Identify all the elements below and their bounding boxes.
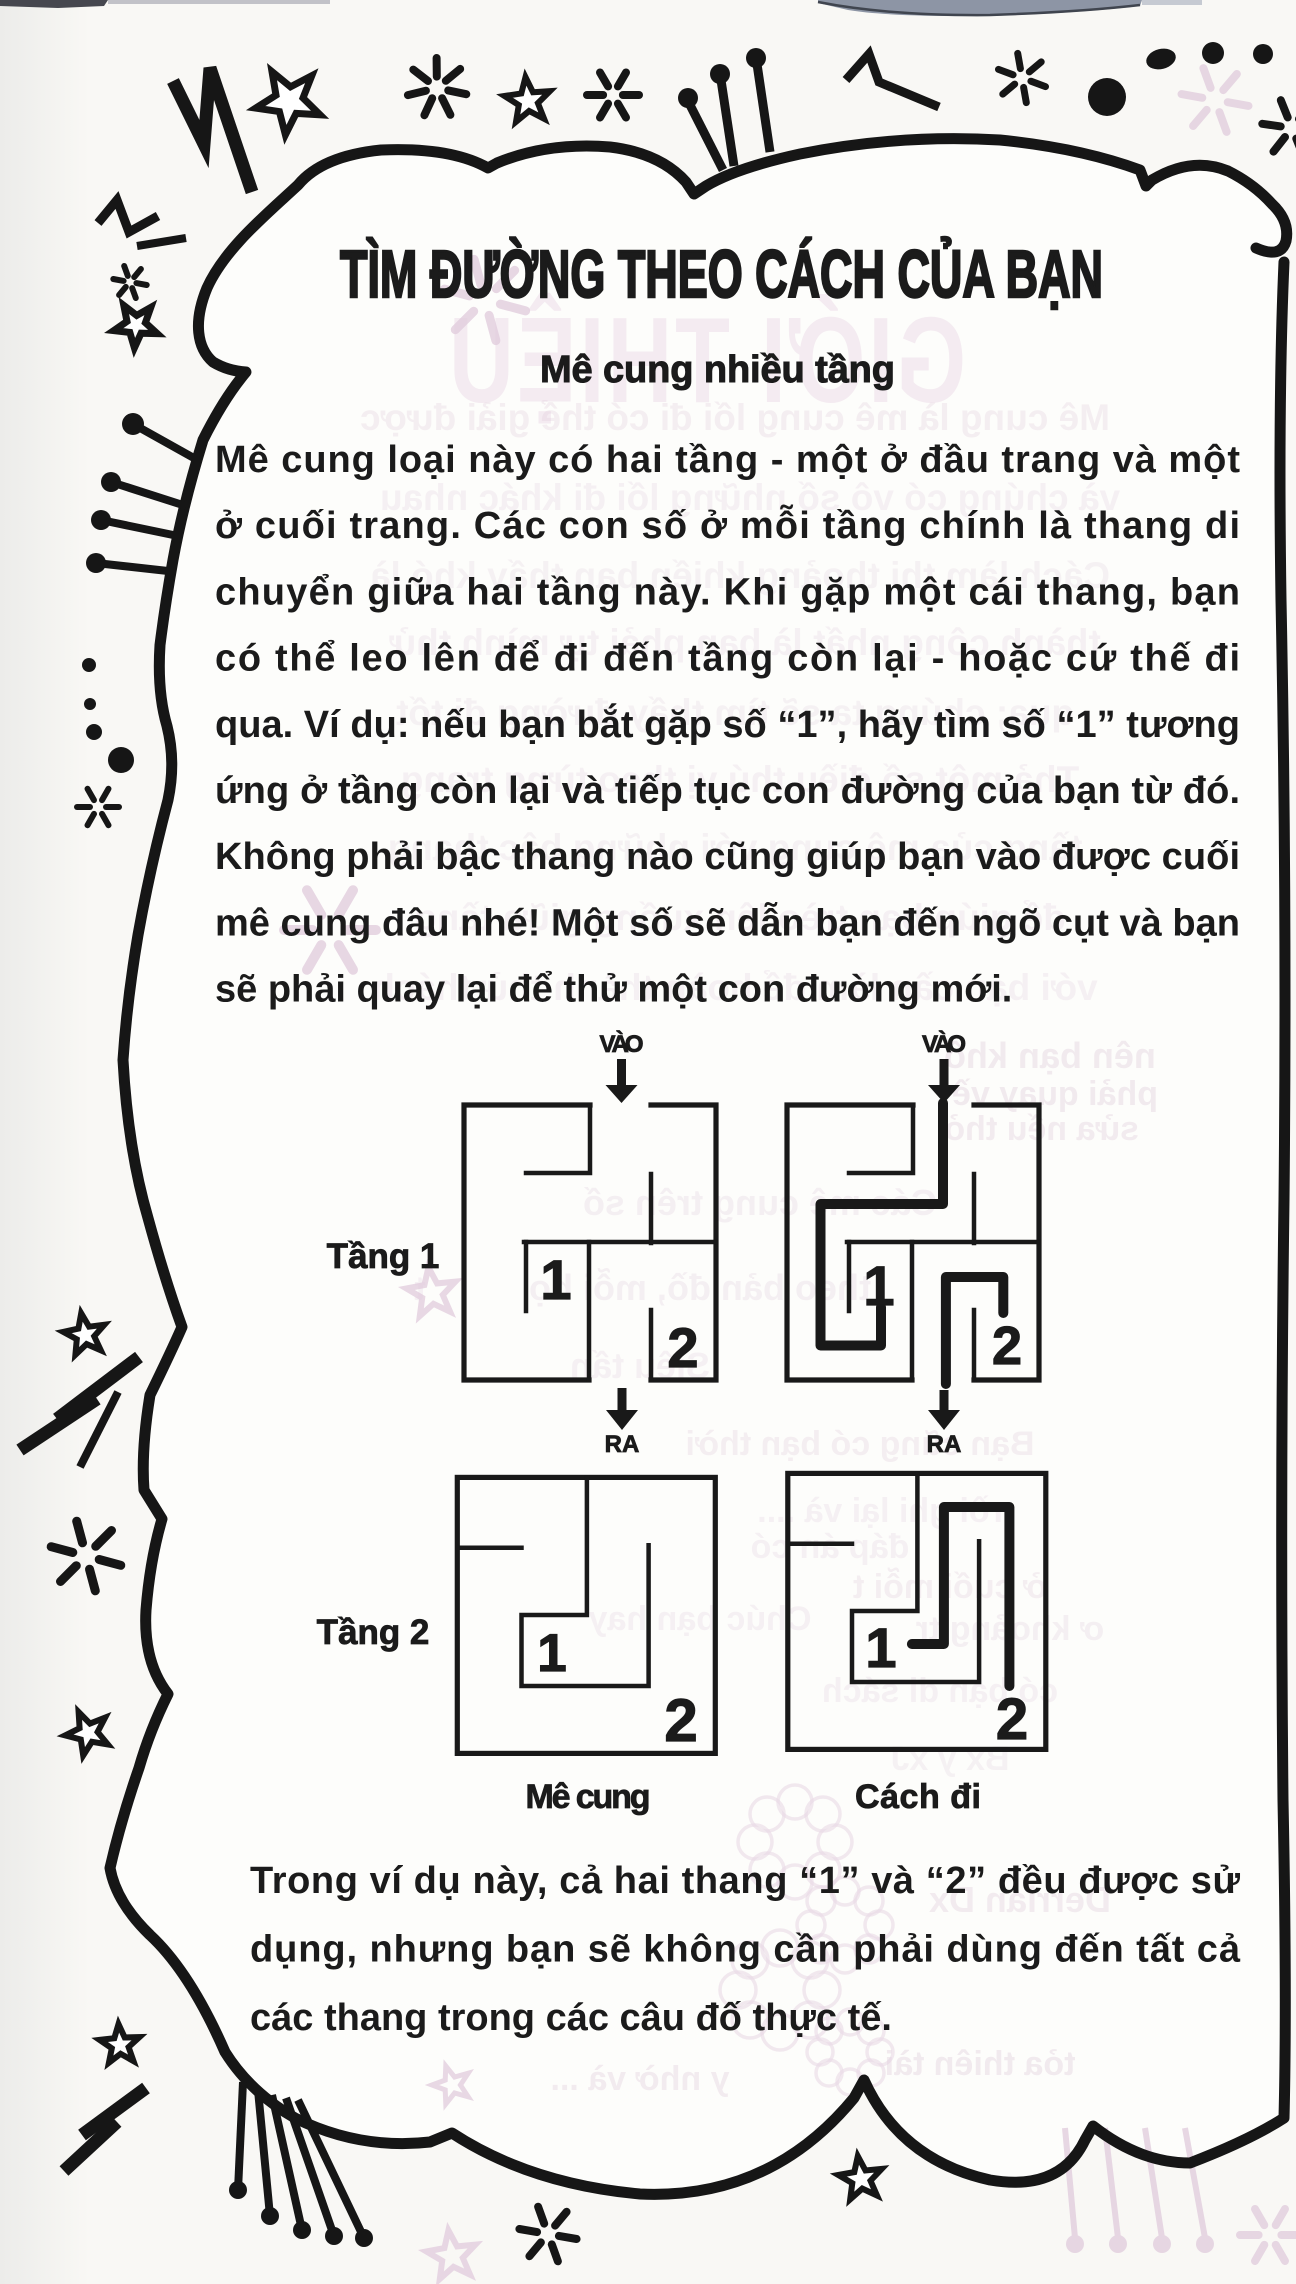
svg-text:sẽ phải quay lại để thử một co: sẽ phải quay lại để thử một con đường mớ… [215, 969, 1012, 1011]
svg-text:dụng, nhưng bạn sẽ không cần p: dụng, nhưng bạn sẽ không cần phải dùng đ… [250, 1929, 1241, 1971]
svg-text:Chúc bạn hay: Chúc bạn hay [588, 1600, 811, 1638]
svg-text:y nhờ và ...: y nhờ và ... [550, 2060, 729, 2098]
svg-text:đáp án có: đáp án có [751, 1528, 910, 1566]
svg-text:Mê cung loại này có hai tầng -: Mê cung loại này có hai tầng - một ở đầu… [215, 439, 1240, 481]
svg-text:mê cung đâu nhé! Một số sẽ dẫn: mê cung đâu nhé! Một số sẽ dẫn bạn đến n… [215, 900, 1240, 944]
svg-text:1: 1 [537, 1624, 566, 1683]
svg-text:Bạn cũng có bạn thời: Bạn cũng có bạn thời [685, 1425, 1034, 1463]
svg-text:RA: RA [927, 1431, 962, 1458]
svg-text:có thể leo lên để đi đến tầng: có thể leo lên để đi đến tầng còn lại - … [215, 638, 1240, 680]
svg-text:ở cuối trang. Các con số ở mỗi: ở cuối trang. Các con số ở mỗi tầng chín… [215, 503, 1240, 547]
svg-text:Bx y xJ: Bx y xJ [890, 1740, 1009, 1778]
svg-text:Tầng 1: Tầng 1 [327, 1237, 440, 1276]
svg-text:Tầng 2: Tầng 2 [317, 1613, 430, 1652]
svg-text:2: 2 [996, 1687, 1028, 1752]
svg-text:qua. Ví dụ: nếu bạn bắt gặp số: qua. Ví dụ: nếu bạn bắt gặp số “1”, hãy … [215, 702, 1240, 746]
svg-text:2: 2 [992, 1316, 1022, 1376]
svg-text:ứng ở tầng còn lại và tiếp tục: ứng ở tầng còn lại và tiếp tục con đường… [215, 770, 1240, 812]
svg-text:tỏa thiên tài: tỏa thiên tài [885, 2045, 1076, 2083]
svg-text:chuyển giữa hai tầng này. Khi: chuyển giữa hai tầng này. Khi gặp một cá… [215, 571, 1240, 613]
svg-text:VÀO: VÀO [922, 1030, 966, 1058]
svg-text:Trong ví dụ này, cả hai thang: Trong ví dụ này, cả hai thang “1” và “2”… [250, 1860, 1240, 1902]
svg-text:nên bạn khô: nên bạn khô [944, 1035, 1156, 1076]
svg-text:Không phải bậc thang nào cũng: Không phải bậc thang nào cũng giúp bạn v… [215, 836, 1240, 878]
svg-text:RA: RA [605, 1431, 640, 1458]
svg-text:Cách đi: Cách đi [855, 1778, 981, 1816]
svg-text:1: 1 [540, 1248, 571, 1311]
svg-text:TÌM ĐƯỜNG THEO CÁCH CỦA BẠN: TÌM ĐƯỜNG THEO CÁCH CỦA BẠN [340, 237, 1103, 312]
svg-text:2: 2 [667, 1316, 698, 1379]
svg-text:Mê cung nhiều tầng: Mê cung nhiều tầng [540, 349, 895, 391]
svg-text:ở cuối mỗi t: ở cuối mỗi t [853, 1568, 1047, 1606]
svg-text:1: 1 [865, 1616, 896, 1679]
svg-text:2: 2 [664, 1687, 697, 1754]
svg-text:Mê cung là mê cung lối đi có t: Mê cung là mê cung lối đi có thể giải đư… [360, 397, 1110, 438]
svg-text:các thang trong các câu đố thự: các thang trong các câu đố thực tế. [250, 1997, 892, 2039]
svg-text:VÀO: VÀO [600, 1030, 644, 1058]
svg-text:Mê cung: Mê cung [526, 1778, 651, 1816]
svg-text:1: 1 [863, 1254, 894, 1317]
